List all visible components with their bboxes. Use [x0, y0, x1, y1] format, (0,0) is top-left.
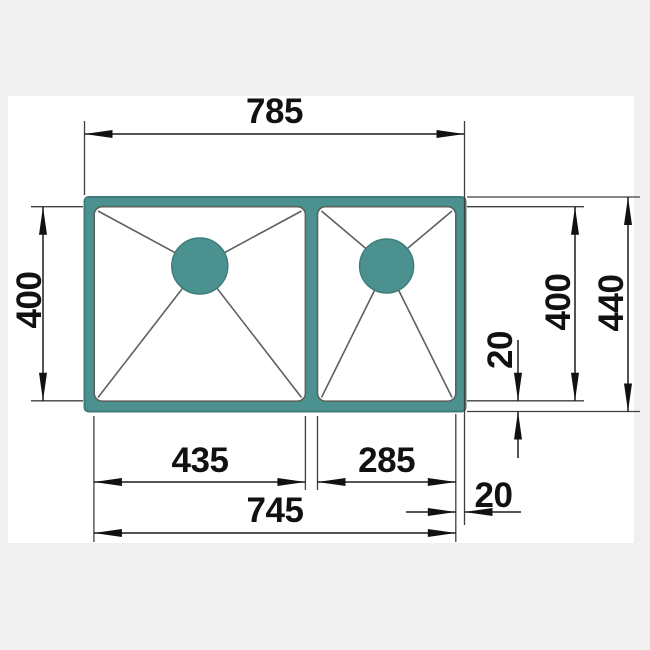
dim-label-285: 285	[358, 441, 415, 480]
technical-drawing: 785 400 400 440 20 435	[0, 0, 650, 650]
dim-label-20-bottom: 20	[475, 476, 513, 515]
right-drain	[360, 239, 414, 293]
right-bowl	[318, 207, 456, 402]
left-drain	[172, 238, 228, 294]
dim-label-785: 785	[246, 92, 303, 131]
dim-label-20-right: 20	[481, 331, 520, 369]
dim-label-440: 440	[592, 275, 631, 332]
dim-label-400-right: 400	[539, 274, 578, 331]
dim-label-745: 745	[247, 491, 304, 530]
dim-label-435: 435	[172, 441, 229, 480]
left-bowl	[94, 207, 305, 402]
sink-body	[85, 197, 466, 412]
dim-label-400-left: 400	[10, 272, 49, 329]
